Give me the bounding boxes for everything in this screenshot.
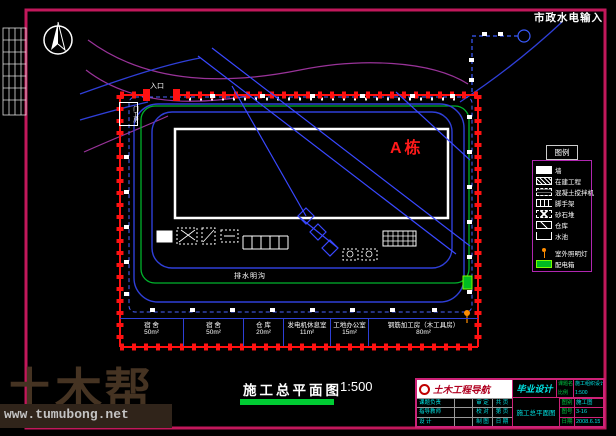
scale-value: 1:500 — [574, 389, 588, 398]
open-rect-icon — [536, 232, 552, 240]
hatch-rect-icon — [536, 177, 552, 185]
north-compass-icon — [44, 22, 72, 54]
entrance-label: 入口 — [150, 81, 164, 91]
legend-item: 水池 — [536, 231, 588, 241]
org-logo: 土木工程导航 — [417, 380, 512, 398]
solid-rect-icon — [536, 166, 552, 174]
legend-item: 脚手架 — [536, 198, 588, 208]
signature-table: 课题负责 审 定 共 页 指导教师 校 对 第 页 设 计 制 图 日 期 — [417, 398, 512, 426]
diag-rect-icon — [536, 221, 552, 229]
drain-label: 排水明沟 — [234, 271, 266, 281]
room-cell: 宿 舍50m² — [120, 319, 183, 346]
cross-hatch-icon — [536, 210, 552, 218]
margin-table — [3, 28, 26, 115]
drainage-loop — [141, 106, 469, 283]
title-block: 土木工程导航 毕业设计 课题名称 施工组织设计 比例 1:500 课题负责 审 … — [415, 378, 605, 428]
drawing-caption: 施工总平面图 — [243, 379, 342, 399]
legend-item: 砂石堆 — [536, 209, 588, 219]
legend-item: 在建工程 — [536, 176, 588, 186]
legend-item: 室外照明灯 — [536, 248, 588, 258]
tower-crane — [198, 48, 470, 256]
gatehouse: 门卫房 — [119, 102, 138, 126]
drawing-scale: 1:500 — [340, 379, 373, 394]
room-cell: 仓 库20m² — [243, 319, 283, 346]
project-cell: 课题名称 施工组织设计 比例 1:500 — [556, 380, 603, 398]
comb-icon — [536, 199, 552, 207]
drawing-meta: 图别 施工图 图号 3-16 日期 2008.6.15 — [559, 398, 603, 426]
legend-item: 混凝土搅拌机 — [536, 187, 588, 197]
project-stage: 毕业设计 — [512, 380, 556, 398]
room-cell: 宿 舍50m² — [183, 319, 243, 346]
room-cell: 发电机休息室11m² — [283, 319, 330, 346]
scale-label: 比例 — [557, 389, 574, 398]
room-cell: 钢筋加工房（木工具房）80m² — [368, 319, 478, 346]
drawing-name: 施工总平面图 — [512, 398, 559, 426]
watermark-url: www.tumubong.net — [4, 407, 129, 422]
org-name: 土木工程导航 — [433, 382, 490, 396]
yard-symbols — [157, 228, 416, 260]
power-box-icon — [536, 260, 552, 268]
power-box-icon — [463, 276, 472, 289]
building-label: A栋 — [390, 134, 424, 158]
drawing-sheet: 市政水电输入 入口 门卫房 A栋 排水明沟 宿 舍50m² 宿 舍50m² 仓 … — [0, 0, 616, 436]
legend-item: 仓库 — [536, 220, 588, 230]
room-cell: 工地办公室15m² — [330, 319, 368, 346]
legend-title: 图例 — [546, 145, 578, 160]
dashed-rect-icon — [536, 188, 552, 196]
utility-feed-line — [472, 30, 530, 96]
caption-underline — [240, 399, 334, 405]
temp-facility-row: 宿 舍50m² 宿 舍50m² 仓 库20m² 发电机休息室11m² 工地办公室… — [120, 318, 478, 346]
legend-box: 墙 在建工程 混凝土搅拌机 脚手架 砂石堆 仓库 水池 室外照明灯 配电箱 — [532, 160, 592, 272]
project-value: 施工组织设计 — [574, 380, 603, 389]
lamp-icon — [536, 249, 552, 257]
legend-item: 配电箱 — [536, 259, 588, 269]
project-label: 课题名称 — [557, 380, 574, 389]
municipal-input-label: 市政水电输入 — [534, 10, 603, 25]
org-logo-icon — [419, 384, 430, 395]
legend-item: 墙 — [536, 165, 588, 175]
